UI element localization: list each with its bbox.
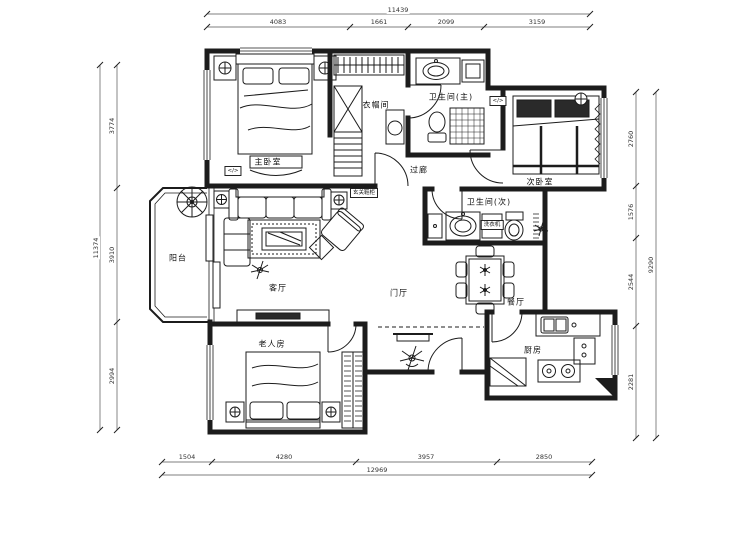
elder-bed (226, 352, 364, 428)
entry-cabinet-tag: 玄关鞋柜 (350, 188, 378, 198)
room-label-master-bathroom: 卫生间(主) (429, 92, 473, 103)
dim-top-seg-1: 4083 (269, 18, 288, 26)
dim-right-seg-1: 2760 (627, 130, 635, 149)
dim-right-seg-2: 1576 (627, 203, 635, 222)
ac-unit-tag-master: </> (224, 166, 241, 176)
dimension-ticks (97, 11, 659, 478)
dim-top-total: 11439 (387, 6, 410, 14)
dim-bottom-total: 12969 (366, 466, 389, 474)
dim-top-seg-3: 2099 (437, 18, 456, 26)
balcony-plant (177, 187, 207, 217)
dim-left-seg-3: 2994 (108, 367, 116, 386)
dim-right-seg-3: 2544 (627, 273, 635, 292)
room-label-master-bedroom: 主卧室 (255, 157, 282, 168)
dim-bottom-seg-3: 3957 (417, 453, 436, 461)
entry-console-plant (393, 334, 433, 370)
dim-left-seg-1: 3774 (108, 117, 116, 136)
room-label-second-bedroom: 次卧室 (527, 177, 554, 188)
dim-bottom-seg-4: 2850 (535, 453, 554, 461)
living-room-set (214, 188, 365, 322)
room-label-dining-room: 餐厅 (507, 297, 525, 308)
dim-left-seg-2: 3910 (108, 246, 116, 265)
room-label-living-room: 客厅 (269, 283, 287, 294)
room-label-balcony: 阳台 (169, 253, 187, 264)
dim-left-total: 11374 (92, 237, 100, 260)
kitchen-fixtures (490, 314, 613, 396)
dim-top-seg-2: 1661 (370, 18, 389, 26)
dim-right-seg-4: 2281 (627, 373, 635, 392)
dim-bottom-seg-1: 1504 (178, 453, 197, 461)
room-label-elder-room: 老人房 (259, 339, 286, 350)
cloakroom-wardrobe (334, 55, 404, 176)
dining-set (456, 246, 514, 314)
room-label-corridor: 过廊 (410, 165, 428, 176)
room-label-cloakroom: 衣帽间 (363, 100, 390, 111)
ac-unit-tag-second: </> (489, 96, 506, 106)
floor-plan-canvas: 主卧室 衣帽间 卫生间(主) 过廊 次卧室 卫生间(次) 阳台 客厅 门厅 餐厅… (0, 0, 740, 555)
room-label-entrance-hall: 门厅 (390, 288, 408, 299)
dimension-lines (100, 14, 656, 475)
room-label-second-bathroom: 卫生间(次) (467, 197, 511, 208)
dim-top-seg-4: 3159 (528, 18, 547, 26)
second-bed (513, 93, 600, 174)
dim-right-total: 9290 (647, 256, 655, 275)
dim-bottom-seg-2: 4280 (275, 453, 294, 461)
washing-machine-tag: 洗衣机 (481, 220, 504, 230)
room-label-kitchen: 厨房 (524, 345, 542, 356)
